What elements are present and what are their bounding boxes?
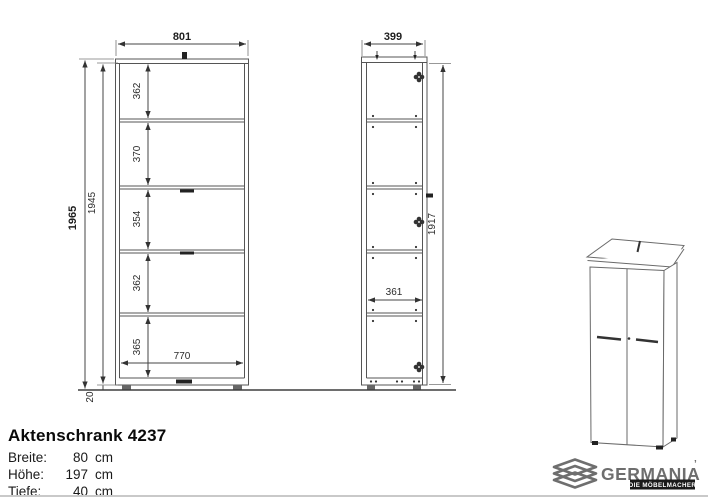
dim-front-height-carcass: 1945 [87, 191, 98, 214]
dim-side-door-height: 1917 [427, 212, 438, 235]
dim-compartment-4: 362 [132, 274, 143, 291]
shelf-fitting-mark [180, 252, 194, 255]
mounting-pin-icon [375, 51, 416, 60]
bottom-separator-line [0, 495, 708, 497]
plinth-fitting-mark [176, 380, 192, 384]
dim-front-width-inner: 770 [174, 351, 191, 362]
spec-row-tiefe: Tiefe: 40 cm [8, 484, 113, 501]
dim-compartment-2: 370 [132, 145, 143, 162]
spec-value: 197 [60, 467, 88, 482]
dim-side-depth-outer: 399 [384, 31, 402, 43]
drill-holes [370, 115, 420, 383]
foot-glide [656, 446, 663, 450]
dim-plinth-height: 20 [85, 391, 96, 403]
front-view: 801 362 370 354 [67, 31, 249, 403]
brand-tagline: DIE MÖBELMACHER [629, 482, 697, 489]
dim-compartment-1: 362 [132, 82, 143, 99]
germania-logo: GERMANIA ’ DIE MÖBELMACHER [554, 459, 700, 490]
spec-value: 80 [60, 450, 88, 465]
dim-side-depth-inner: 361 [386, 287, 403, 298]
technical-drawing-sheet: 801 362 370 354 [0, 0, 708, 501]
spec-row-hoehe: Höhe: 197 cm [8, 467, 113, 484]
spec-label: Breite: [8, 450, 60, 465]
dim-front-height-outer: 1965 [67, 206, 79, 230]
product-title: Aktenschrank 4237 [8, 426, 166, 446]
spec-unit: cm [88, 467, 113, 482]
dim-compartment-5: 365 [132, 338, 143, 355]
spec-label: Höhe: [8, 467, 60, 482]
spec-row-breite: Breite: 80 cm [8, 450, 113, 467]
spec-unit: cm [88, 450, 113, 465]
side-view: 399 [362, 31, 452, 390]
handle-side-profile [426, 194, 433, 198]
shelf-fitting-mark [180, 190, 194, 193]
dim-compartment-3: 354 [132, 210, 143, 227]
foot-glide [671, 438, 676, 442]
stacked-boards-icon [554, 460, 596, 488]
product-specs: Breite: 80 cm Höhe: 197 cm Tiefe: 40 cm [8, 450, 113, 501]
cabinet-3d-preview [587, 239, 684, 450]
foot-glide [592, 441, 598, 445]
brand-mark: ’ [694, 459, 697, 470]
dim-front-width-outer: 801 [173, 31, 191, 43]
top-fitting-mark [182, 52, 187, 59]
